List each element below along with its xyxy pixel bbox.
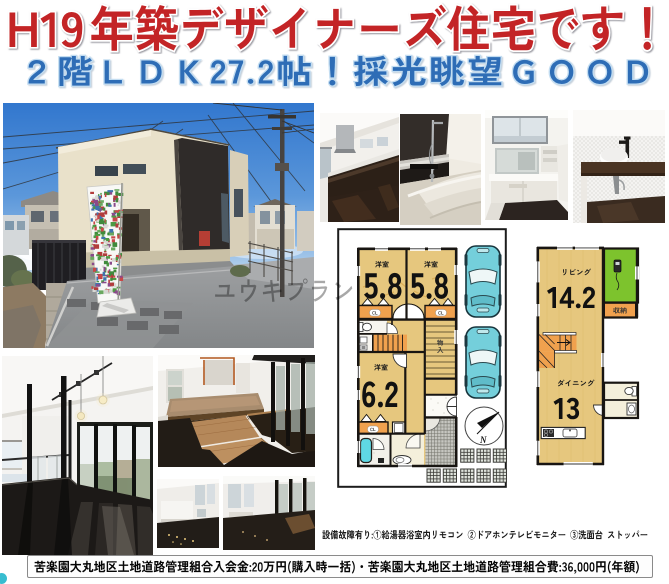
svg-text:N: N — [479, 435, 487, 445]
